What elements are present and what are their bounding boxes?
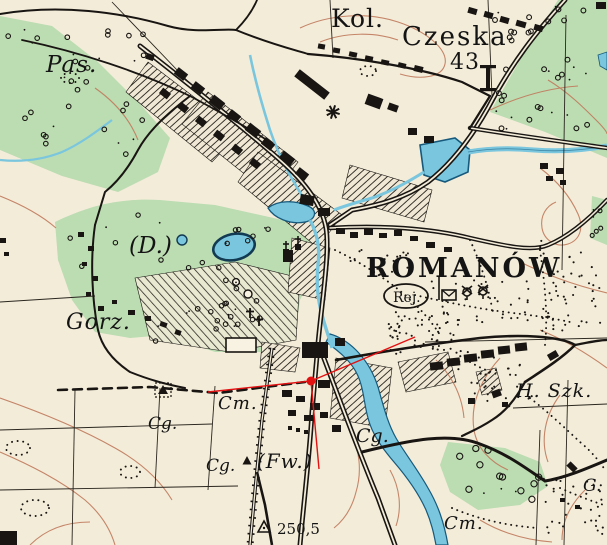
stipple-dot [501,317,503,319]
building [430,361,444,370]
stipple-dot [509,374,511,376]
stipple-dot [421,324,423,326]
stipple-dot [591,300,593,302]
stipple-dot [508,405,510,407]
stipple-dot [447,313,449,315]
map-label-czeska: Czeska [402,22,508,52]
stipple-dot [602,527,604,529]
stipple-dot [476,319,478,321]
map-label-cg3: Cg. [356,425,389,447]
map-canvas: Pas.Kol.Czeska43(D.)Gorz.ROMANÓWRej.H. S… [0,0,607,545]
building [468,398,475,404]
stipple-dot [516,317,518,319]
stipple-dot [551,521,553,523]
stipple-dot [548,316,550,318]
map-label-romanow: ROMANÓW [366,250,562,284]
stipple-dot [484,379,486,381]
stipple-dot [414,344,416,346]
stipple-dot [578,325,580,327]
building [320,412,328,418]
stipple-dot [594,305,596,307]
stipple-dot [588,282,590,284]
building [304,415,313,421]
stipple-dot [563,281,565,283]
annotation-dot [307,377,316,386]
stipple-dot [592,284,594,286]
map-label-kol: Kol. [331,4,384,33]
building [408,128,417,135]
stipple-dot [446,321,448,323]
building [596,2,606,9]
building [350,232,358,238]
stipple-dot [567,314,569,316]
stipple-dot [431,315,433,317]
map-label-cg1: Cg. [148,414,177,434]
stipple-dot [436,339,438,341]
stipple-dot [395,353,397,355]
building [498,345,511,354]
stipple-dot [519,364,521,366]
stipple-dot [388,323,390,325]
building [0,238,6,243]
map-label-g: G. [583,476,601,496]
stipple-dot [578,275,580,277]
building [464,353,478,362]
map-label-cm2: Cm. [444,513,484,534]
building [282,390,292,397]
stipple-dot [559,480,561,482]
stipple-dot [396,323,398,325]
building [426,242,435,248]
building [86,292,91,296]
stipple-dot [350,260,352,262]
map-label-cg2: Cg. [206,456,235,476]
stipple-dot [474,392,476,394]
building [304,430,308,434]
stipple-dot [584,521,586,523]
stipple-dot [489,352,491,354]
stipple-dot [557,295,559,297]
stipple-dot [563,476,565,478]
stipple-dot [492,310,494,312]
stipple-dot [505,397,507,399]
stipple-dot [547,312,549,314]
stipple-dot [395,311,397,313]
map-label-fw: (Fw.) [257,449,313,473]
stipple-dot [408,318,410,320]
stipple-dot [439,327,441,329]
stipple-dot [455,352,457,354]
stipple-dot [542,308,544,310]
stipple-dot [527,299,529,301]
stipple-dot [432,348,434,350]
stipple-dot [597,506,599,508]
stipple-dot [354,258,356,260]
stipple-dot [518,297,520,299]
building [335,338,345,346]
stipple-dot [580,251,582,253]
stipple-dot [497,300,499,302]
stipple-dot [597,529,599,531]
stipple-dot [564,299,566,301]
building [302,342,328,358]
building [78,232,84,237]
stipple-dot [585,321,587,323]
stipple-dot [488,372,490,374]
building [364,229,373,235]
stipple-dot [591,266,593,268]
stipple-dot [567,503,569,505]
stipple-dot [443,349,445,351]
stipple-dot [524,311,526,313]
building [310,403,320,410]
map-edge-mark [0,531,17,545]
stipple-dot [405,332,407,334]
stipple-dot [467,355,469,357]
stipple-dot [480,373,482,375]
stipple-dot [590,509,592,511]
building [481,349,495,358]
building [112,300,117,304]
stipple-dot [414,339,416,341]
stipple-dot [420,346,422,348]
building [336,228,345,234]
building [4,252,9,256]
stipple-dot [541,330,543,332]
stipple-dot [458,319,460,321]
map-label-d: (D.) [129,233,172,259]
stipple-dot [562,276,564,278]
stipple-dot [553,488,555,490]
building [560,498,565,502]
stipple-dot [527,288,529,290]
stipple-dot [572,486,574,488]
building [556,168,564,174]
stipple-dot [417,324,419,326]
stipple-dot [397,338,399,340]
stipple-dot [404,315,406,317]
map-label-rej: Rej. [393,290,421,306]
map-label-h2505: 250,5 [277,520,320,538]
stipple-dot [510,317,512,319]
stipple-dot [569,256,571,258]
stipple-dot [592,290,594,292]
stipple-dot [423,343,425,345]
stipple-dot [563,296,565,298]
stipple-dot [432,334,434,336]
stipple-dot [494,297,496,299]
stipple-dot [570,273,572,275]
stipple-dot [450,348,452,350]
map-label-hszk: H. Szk. [515,380,592,402]
stipple-dot [540,240,542,242]
stipple-dot [565,302,567,304]
stipple-dot [573,261,575,263]
building [515,342,528,351]
building [296,396,305,402]
stipple-dot [598,515,600,517]
stipple-dot [595,274,597,276]
stipple-dot [527,319,529,321]
building [502,402,508,407]
building [394,230,402,236]
stipple-dot [552,324,554,326]
stipple-dot [552,319,554,321]
stipple-dot [579,507,581,509]
park-pond [177,235,187,245]
stipple-dot [593,298,595,300]
stipple-dot [401,319,403,321]
stipple-dot [491,387,493,389]
stipple-dot [478,357,480,359]
stipple-dot [558,522,560,524]
stipple-dot [432,346,434,348]
stipple-dot [555,285,557,287]
stipple-dot [417,311,419,313]
stipple-dot [459,355,461,357]
stipple-dot [550,299,552,301]
stipple-dot [455,363,457,365]
stipple-dot [399,332,401,334]
stipple-dot [485,385,487,387]
screenshot-root: Pas.Kol.Czeska43(D.)Gorz.ROMANÓWRej.H. S… [0,0,607,545]
building [575,505,580,509]
stipple-dot [437,349,439,351]
stipple-dot [590,520,592,522]
building [288,426,292,430]
stipple-dot [450,339,452,341]
stipple-dot [452,334,454,336]
stipple-dot [546,526,548,528]
stipple-dot [415,317,417,319]
stipple-dot [581,275,583,277]
stipple-dot [437,331,439,333]
stipple-dot [399,351,401,353]
map-label-pas: Pas. [45,52,97,78]
stipple-dot [476,382,478,384]
building [145,316,151,321]
map-label-gorz: Gorz. [66,310,131,335]
stipple-dot [443,311,445,313]
stipple-dot [389,335,391,337]
stipple-dot [487,393,489,395]
building [318,380,330,388]
building [92,276,98,281]
stipple-dot [510,304,512,306]
stipple-dot [358,250,360,252]
building [332,425,341,432]
stipple-dot [555,479,557,481]
stipple-dot [438,345,440,347]
stipple-dot [457,368,459,370]
stipple-dot [572,294,574,296]
stipple-dot [458,361,460,363]
stipple-dot [431,338,433,340]
stipple-dot [595,525,597,527]
building [540,163,548,169]
stipple-dot [548,532,550,534]
stipple-dot [543,478,545,480]
stipple-dot [507,368,509,370]
stipple-dot [493,357,495,359]
stipple-dot [600,499,602,501]
building [88,246,94,251]
stipple-dot [442,306,444,308]
stipple-dot [476,315,478,317]
stipple-dot [599,322,601,324]
stipple-dot [545,484,547,486]
building [546,176,553,181]
stipple-dot [601,533,603,535]
stipple-dot [396,335,398,337]
stipple-dot [502,313,504,315]
building [318,208,330,216]
stipple-dot [457,324,459,326]
building [560,180,566,185]
stipple-dot [539,246,541,248]
stipple-dot [485,374,487,376]
stipple-dot [504,349,506,351]
stipple-dot [562,525,564,527]
stipple-dot [581,320,583,322]
stipple-dot [527,301,529,303]
stipple-dot [542,317,544,319]
stipple-dot [493,386,495,388]
stipple-dot [428,330,430,332]
stipple-dot [411,335,413,337]
building [296,428,300,432]
stipple-dot [595,520,597,522]
stipple-dot [515,374,517,376]
stipple-dot [397,349,399,351]
map-label-n43: 43 [450,50,480,75]
stipple-dot [555,290,557,292]
stipple-dot [561,477,563,479]
stipple-dot [467,351,469,353]
stipple-dot [388,328,390,330]
stipple-dot [436,323,438,325]
stipple-dot [449,332,451,334]
stipple-dot [421,319,423,321]
map-label-cm1: Cm. [218,393,258,414]
stipple-dot [398,315,400,317]
stipple-dot [561,494,563,496]
stipple-dot [390,326,392,328]
stipple-dot [574,286,576,288]
stipple-dot [390,349,392,351]
building [410,236,418,241]
stipple-dot [395,330,397,332]
building [288,410,296,416]
building [379,233,387,238]
stipple-dot [460,350,462,352]
stipple-dot [429,316,431,318]
stipple-dot [495,369,497,371]
stipple-dot [398,326,400,328]
stipple-dot [549,292,551,294]
stipple-dot [552,328,554,330]
building [424,136,434,143]
stipple-dot [470,382,472,384]
stipple-dot [564,324,566,326]
stipple-dot [553,490,555,492]
building [444,247,452,252]
stipple-dot [561,329,563,331]
stipple-dot [565,514,567,516]
stipple-dot [432,287,434,289]
stipple-dot [487,296,489,298]
stipple-dot [481,321,483,323]
stipple-dot [598,287,600,289]
stipple-dot [360,249,362,251]
stipple-dot [545,501,547,503]
stipple-dot [392,336,394,338]
stipple-dot [486,400,488,402]
